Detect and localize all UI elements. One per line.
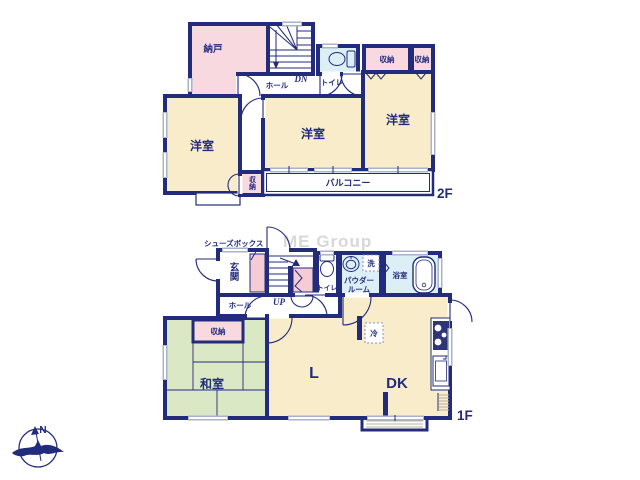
label-dn: DN [294, 74, 308, 84]
label-powder-2: ルーム [348, 285, 371, 294]
label-balcony-2f: バルコニー [326, 178, 371, 188]
compass-north-label: N [39, 425, 46, 436]
bathtub-icon-1f [413, 257, 435, 293]
label-hall-1f: ホール [229, 301, 252, 310]
label-bedroom-left-2f: 洋室 [190, 138, 214, 153]
label-fridge: 冷 [370, 328, 378, 338]
label-japanese-room: 和室 [199, 376, 224, 391]
label-closet-b-2f: 収納 [415, 54, 430, 64]
stove-icon [433, 321, 449, 350]
north-compass: N [12, 425, 64, 467]
label-washer: 洗 [367, 258, 375, 268]
label-toilet-1f: トイレ [317, 284, 338, 292]
shoes-box-1f [250, 254, 265, 292]
label-toilet-2f: トイレ [321, 78, 344, 87]
wall-stub-ldk [383, 392, 388, 418]
label-entrance: 玄関 [228, 261, 240, 282]
label-up: UP [273, 297, 285, 307]
label-floor-2f: 2F [437, 186, 453, 201]
room-ldk-1f [267, 295, 450, 418]
label-living: L [309, 365, 319, 382]
label-storeroom-2f: 納戸 [203, 43, 223, 55]
label-dining-kitchen: DK [386, 375, 408, 392]
first-floor-plan: シューズボックス 玄関 UP ホール トイレ 洗 パウダー ルーム 浴室 収納 … [165, 227, 473, 430]
label-hall-2f: ホール [266, 81, 289, 90]
label-bath: 浴室 [393, 270, 408, 280]
label-powder-1: パウダー [344, 275, 374, 285]
label-floor-1f: 1F [457, 408, 473, 423]
floor-plan-page: 納戸 ホール DN トイレ 収納 収納 洋室 洋室 洋室 収納 バルコニー 2F… [0, 0, 640, 480]
label-closet-a-2f: 収納 [380, 54, 395, 64]
label-bedroom-center-2f: 洋室 [301, 126, 325, 141]
label-closet-1f: 収納 [211, 326, 226, 336]
kitchen-counter-1f [431, 318, 450, 390]
label-shoes-box: シューズボックス [204, 238, 263, 248]
floor-plan-drawing: 納戸 ホール DN トイレ 収納 収納 洋室 洋室 洋室 収納 バルコニー 2F… [0, 0, 640, 480]
second-floor-plan: 納戸 ホール DN トイレ 収納 収納 洋室 洋室 洋室 収納 バルコニー 2F [165, 24, 453, 205]
wall-stub-stairs [288, 266, 293, 295]
room-toilet-2f [318, 46, 358, 74]
room-storeroom-2f [190, 24, 268, 96]
label-bedroom-right-2f: 洋室 [386, 112, 410, 127]
